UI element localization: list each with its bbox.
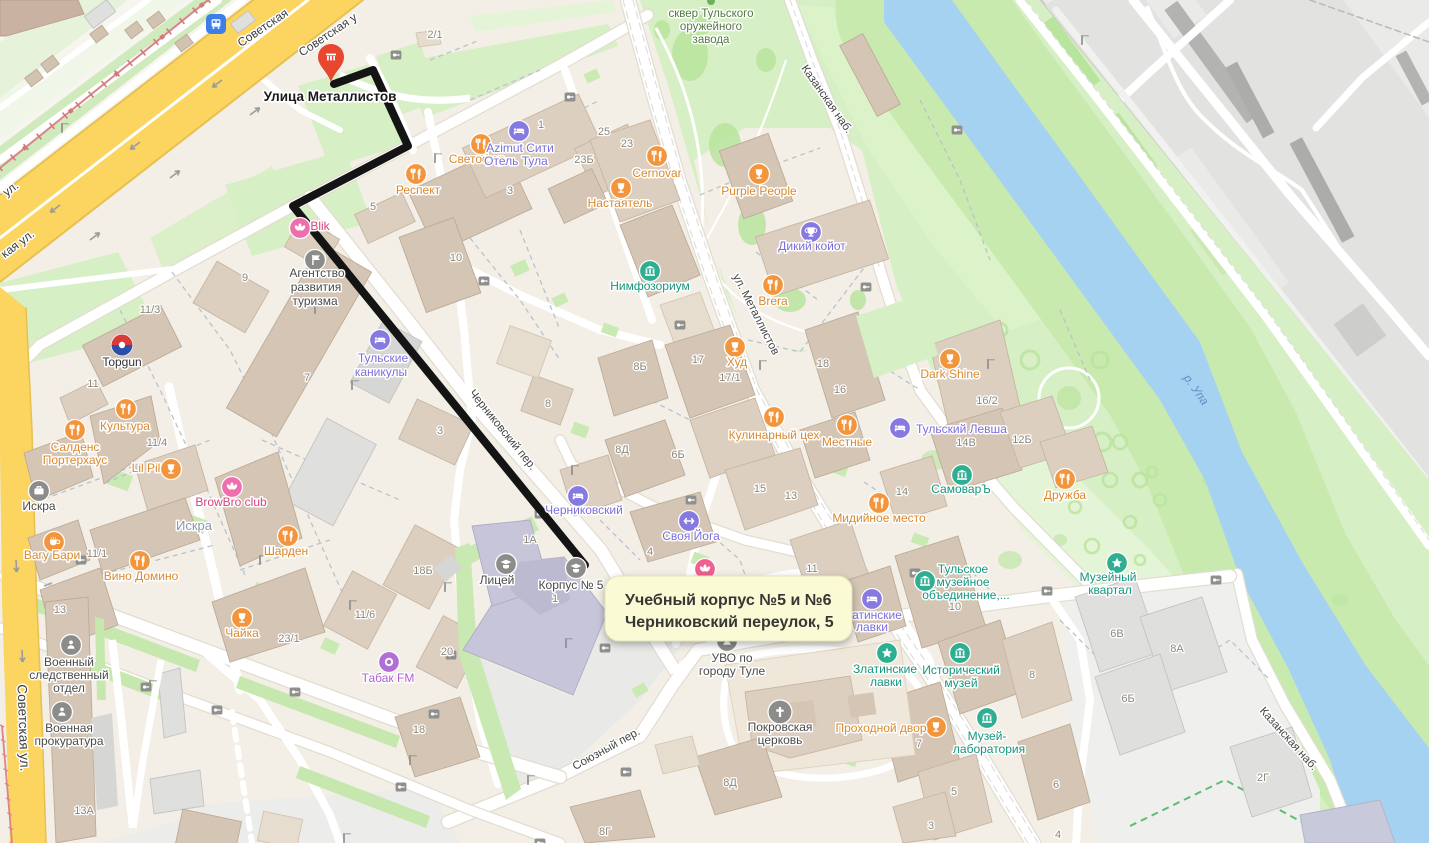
svg-text:завода: завода	[693, 34, 731, 46]
svg-text:Музейный: Музейный	[1080, 570, 1137, 584]
svg-text:14: 14	[896, 486, 908, 498]
svg-text:сквер Тульского: сквер Тульского	[669, 8, 754, 20]
svg-text:Черниковский переулок, 5: Черниковский переулок, 5	[625, 614, 834, 631]
svg-text:Lil Pil: Lil Pil	[132, 461, 161, 475]
svg-text:Тульские: Тульские	[358, 351, 409, 365]
svg-text:церковь: церковь	[758, 733, 803, 747]
svg-text:13: 13	[785, 490, 797, 502]
svg-text:11/1: 11/1	[87, 548, 108, 560]
svg-text:8Г: 8Г	[599, 826, 611, 838]
svg-text:Нимфозориум: Нимфозориум	[610, 279, 690, 293]
svg-text:Военный: Военный	[44, 655, 94, 669]
svg-text:Cernovar: Cernovar	[632, 166, 681, 180]
svg-text:4: 4	[647, 546, 653, 558]
svg-text:Военная: Военная	[45, 721, 93, 735]
svg-text:5: 5	[951, 786, 957, 798]
svg-text:1: 1	[552, 593, 558, 605]
svg-text:Искра: Искра	[22, 499, 56, 513]
svg-text:9: 9	[242, 272, 248, 284]
svg-text:3: 3	[507, 185, 513, 197]
svg-text:BrowBro club: BrowBro club	[195, 495, 267, 509]
svg-text:3: 3	[928, 820, 934, 832]
svg-text:квартал: квартал	[1088, 583, 1132, 597]
svg-text:лаборатория: лаборатория	[953, 742, 1025, 756]
svg-text:Тульский Левша: Тульский Левша	[916, 422, 1007, 436]
svg-text:8Д: 8Д	[615, 444, 629, 456]
svg-text:Черниковский: Черниковский	[545, 503, 623, 517]
svg-text:каникулы: каникулы	[355, 365, 407, 379]
svg-text:3: 3	[437, 425, 443, 437]
svg-text:Кулинарный цех: Кулинарный цех	[729, 428, 820, 442]
svg-text:следственный: следственный	[29, 668, 108, 682]
svg-text:8: 8	[1029, 669, 1035, 681]
svg-text:25: 25	[598, 126, 610, 138]
svg-text:Brera: Brera	[758, 294, 788, 308]
svg-text:6Б: 6Б	[1121, 693, 1134, 705]
svg-text:Улица Металлистов: Улица Металлистов	[264, 89, 397, 104]
svg-text:Покровская: Покровская	[748, 720, 813, 734]
svg-text:Салденс: Салденс	[51, 440, 100, 454]
svg-text:Шарден: Шарден	[264, 544, 308, 558]
svg-text:16/2: 16/2	[976, 395, 997, 407]
svg-text:23Б: 23Б	[574, 154, 593, 166]
svg-text:Портерхаус: Портерхаус	[43, 453, 108, 467]
svg-text:Музей-: Музей-	[968, 729, 1007, 743]
svg-text:18: 18	[413, 724, 425, 736]
svg-text:10: 10	[949, 601, 961, 613]
svg-text:Респект: Респект	[396, 183, 441, 197]
svg-text:Своя Йога: Своя Йога	[662, 528, 720, 543]
svg-text:Советская ул.: Советская ул.	[14, 684, 32, 771]
svg-text:8Б: 8Б	[633, 361, 646, 373]
svg-text:6: 6	[1053, 779, 1059, 791]
svg-text:Azimut Сити: Azimut Сити	[486, 141, 554, 155]
svg-text:7: 7	[916, 738, 922, 750]
svg-text:Проходной двор: Проходной двор	[835, 721, 926, 735]
svg-text:Вино Домино: Вино Домино	[104, 569, 179, 583]
svg-text:8: 8	[545, 398, 551, 410]
svg-text:15: 15	[754, 483, 766, 495]
svg-text:Вагу Бари: Вагу Бари	[24, 548, 80, 562]
svg-text:18Б: 18Б	[413, 565, 432, 577]
svg-text:18: 18	[817, 358, 829, 370]
svg-text:8Д: 8Д	[723, 777, 737, 789]
svg-text:6Б: 6Б	[671, 449, 684, 461]
svg-text:20: 20	[441, 646, 453, 658]
svg-text:музей: музей	[944, 676, 977, 690]
svg-text:Blik: Blik	[310, 219, 330, 233]
svg-text:Агентство: Агентство	[289, 266, 345, 280]
svg-text:отдел: отдел	[53, 681, 85, 695]
svg-text:Отель Тула: Отель Тула	[484, 154, 548, 168]
svg-text:Культура: Культура	[100, 419, 150, 433]
svg-text:Настаятель: Настаятель	[588, 196, 653, 210]
svg-text:Искра: Искра	[176, 518, 213, 533]
svg-text:Purple People: Purple People	[721, 184, 797, 198]
svg-text:23: 23	[621, 138, 633, 150]
svg-text:Чайка: Чайка	[225, 626, 259, 640]
svg-text:Мидийное место: Мидийное место	[832, 511, 926, 525]
svg-text:Табак FM: Табак FM	[362, 671, 415, 685]
svg-text:Златинские: Златинские	[853, 662, 917, 676]
svg-text:14В: 14В	[956, 437, 976, 449]
svg-text:УВО по: УВО по	[711, 651, 752, 665]
svg-text:23/1: 23/1	[278, 633, 299, 645]
svg-text:2/1: 2/1	[427, 29, 442, 41]
svg-text:2Г: 2Г	[1257, 772, 1269, 784]
svg-text:13: 13	[54, 604, 66, 616]
svg-text:развития: развития	[291, 280, 342, 294]
svg-text:11: 11	[806, 563, 817, 575]
svg-text:Худ: Худ	[727, 355, 747, 369]
svg-text:12Б: 12Б	[1012, 434, 1031, 446]
svg-text:11/3: 11/3	[140, 304, 161, 316]
svg-text:11/4: 11/4	[147, 437, 168, 449]
svg-text:лавки: лавки	[870, 675, 902, 689]
svg-text:Корпус № 5: Корпус № 5	[539, 578, 604, 592]
svg-text:прокуратура: прокуратура	[34, 734, 103, 748]
svg-text:10: 10	[450, 252, 462, 264]
svg-text:Исторический: Исторический	[922, 663, 1000, 677]
svg-text:11: 11	[87, 378, 98, 390]
svg-text:музейное: музейное	[936, 575, 989, 589]
svg-text:7: 7	[304, 372, 310, 384]
svg-text:16: 16	[834, 384, 846, 396]
svg-text:17: 17	[692, 354, 704, 366]
svg-text:Местные: Местные	[822, 435, 873, 449]
svg-text:Лицей: Лицей	[480, 573, 515, 587]
svg-text:Dark Shine: Dark Shine	[920, 367, 980, 381]
svg-text:17/1: 17/1	[719, 372, 740, 384]
svg-text:6В: 6В	[1110, 628, 1123, 640]
svg-text:8А: 8А	[1170, 643, 1184, 655]
svg-text:оружейного: оружейного	[680, 21, 742, 33]
svg-text:5: 5	[370, 201, 376, 213]
svg-text:11/6: 11/6	[355, 609, 376, 621]
svg-text:Учебный корпус №5 и №6: Учебный корпус №5 и №6	[625, 592, 832, 609]
svg-text:туризма: туризма	[292, 294, 338, 308]
svg-text:1: 1	[538, 119, 544, 131]
svg-text:СамоварЪ: СамоварЪ	[931, 482, 990, 496]
svg-text:4: 4	[1055, 829, 1061, 841]
svg-text:лавки: лавки	[856, 620, 888, 634]
svg-text:1А: 1А	[523, 534, 537, 546]
svg-text:Тульское: Тульское	[938, 562, 989, 576]
svg-text:Дружба: Дружба	[1044, 488, 1087, 502]
svg-text:городу Туле: городу Туле	[699, 664, 766, 678]
svg-text:Дикий койот: Дикий койот	[778, 239, 846, 253]
svg-text:13А: 13А	[74, 805, 94, 817]
svg-text:объединение,...: объединение,...	[922, 588, 1009, 602]
svg-text:Topgun: Topgun	[102, 355, 141, 369]
